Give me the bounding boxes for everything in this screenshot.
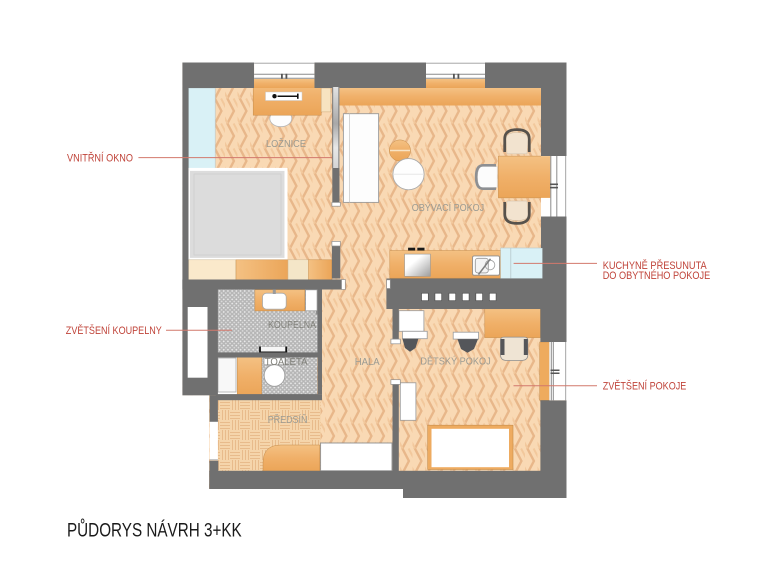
svg-text:ZVĚTŠENÍ POKOJE: ZVĚTŠENÍ POKOJE <box>603 380 687 393</box>
svg-text:PŘEDSÍŇ: PŘEDSÍŇ <box>268 413 308 426</box>
svg-text:ZVĚTŠENÍ KOUPELNY: ZVĚTŠENÍ KOUPELNY <box>66 324 162 337</box>
svg-text:KOUPELNA: KOUPELNA <box>268 320 316 331</box>
svg-text:OBÝVACÍ POKOJ: OBÝVACÍ POKOJ <box>412 201 485 214</box>
svg-text:TOALETA: TOALETA <box>265 357 308 368</box>
svg-text:PŮDORYS NÁVRH 3+KK: PŮDORYS NÁVRH 3+KK <box>67 518 242 542</box>
svg-text:DO OBYTNÉHO POKOJE: DO OBYTNÉHO POKOJE <box>603 269 711 282</box>
svg-text:HALA: HALA <box>355 357 380 368</box>
svg-text:DĚTSKÝ POKOJ: DĚTSKÝ POKOJ <box>420 355 490 368</box>
svg-text:VNITŘNÍ OKNO: VNITŘNÍ OKNO <box>67 152 133 165</box>
svg-text:LOŽNICE: LOŽNICE <box>266 137 306 150</box>
